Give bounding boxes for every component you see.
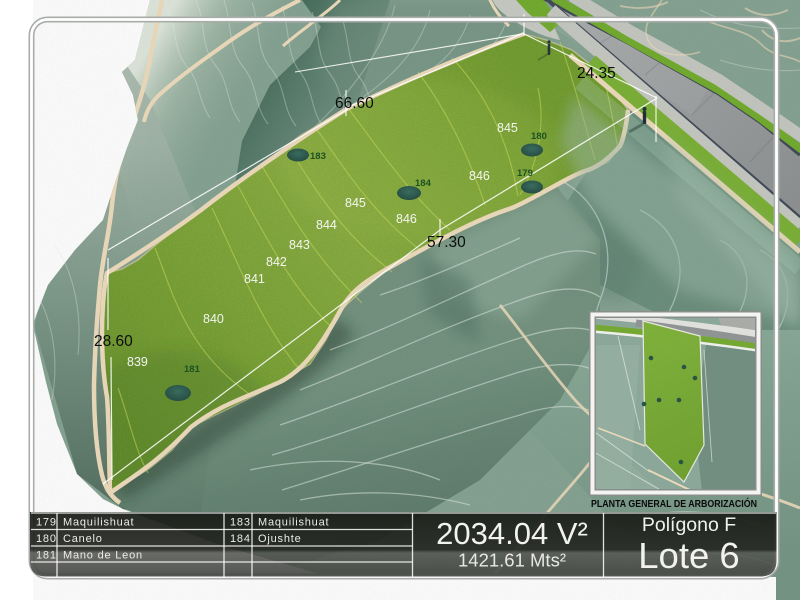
svg-text:66.60: 66.60 (335, 95, 374, 112)
svg-text:841: 841 (244, 272, 265, 286)
svg-text:842: 842 (266, 255, 287, 269)
svg-text:183: 183 (310, 151, 326, 162)
svg-text:Canelo: Canelo (63, 533, 103, 545)
svg-text:2034.04 V²: 2034.04 V² (436, 516, 588, 551)
svg-text:845: 845 (345, 196, 366, 210)
svg-text:843: 843 (289, 238, 310, 252)
svg-text:Polígono F: Polígono F (642, 514, 736, 536)
svg-text:844: 844 (316, 218, 337, 232)
svg-text:840: 840 (203, 312, 224, 326)
svg-text:846: 846 (469, 169, 490, 183)
svg-text:1421.61 Mts²: 1421.61 Mts² (458, 550, 566, 571)
svg-text:180: 180 (36, 533, 57, 545)
svg-text:184: 184 (415, 178, 432, 189)
svg-text:181: 181 (36, 550, 57, 562)
svg-text:Lote 6: Lote 6 (638, 535, 739, 576)
svg-text:PLANTA GENERAL DE ARBORIZACIÓN: PLANTA GENERAL DE ARBORIZACIÓN (591, 497, 757, 510)
svg-text:Maquilishuat: Maquilishuat (63, 517, 134, 529)
svg-text:846: 846 (396, 212, 417, 226)
svg-text:179: 179 (517, 168, 533, 179)
svg-text:28.60: 28.60 (94, 333, 133, 350)
svg-text:183: 183 (230, 517, 251, 529)
svg-text:Mano de Leon: Mano de Leon (63, 550, 143, 562)
svg-text:179: 179 (36, 517, 57, 529)
svg-text:57.30: 57.30 (427, 234, 466, 251)
svg-text:181: 181 (184, 364, 201, 375)
svg-text:Maquilishuat: Maquilishuat (258, 517, 329, 529)
svg-text:845: 845 (497, 121, 518, 135)
svg-text:24.35: 24.35 (577, 65, 616, 82)
svg-text:180: 180 (531, 131, 547, 142)
svg-text:184: 184 (230, 533, 251, 545)
svg-text:Ojushte: Ojushte (258, 533, 302, 545)
svg-text:839: 839 (127, 355, 148, 369)
